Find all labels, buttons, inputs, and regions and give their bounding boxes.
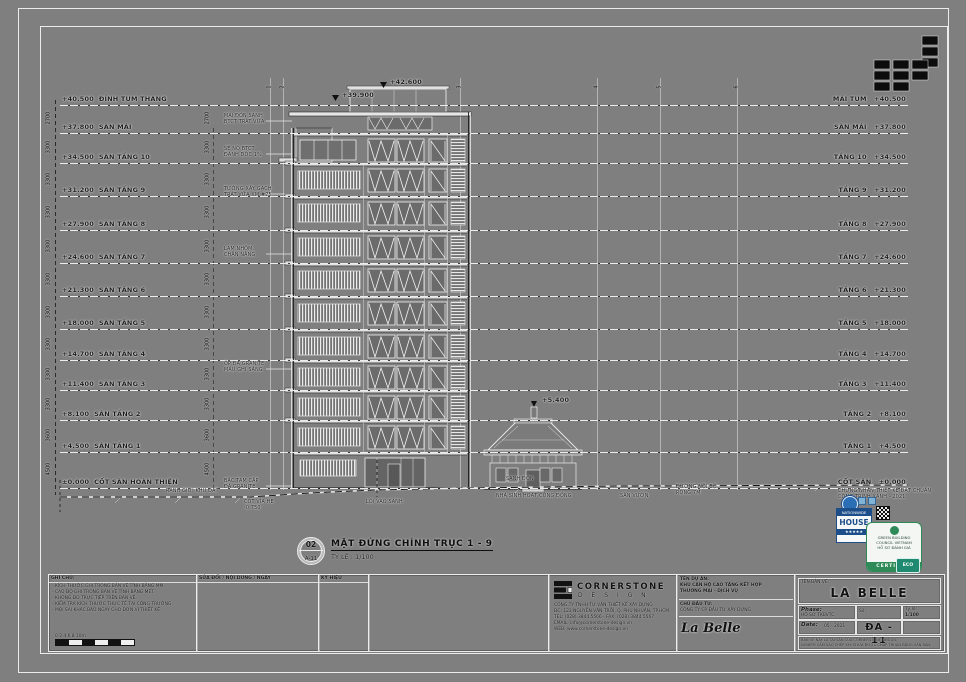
- level-dimension-inner: 3600: [204, 429, 210, 442]
- house-stamp-header: NATIONWIDE: [837, 509, 871, 516]
- legend-box: KÝ HIỆU: [318, 574, 370, 652]
- level-label-right: TẦNG 4 +14.700: [838, 351, 906, 358]
- project-divider: [679, 599, 793, 600]
- firm-address: CÔNG TY TNHH TƯ VẤN THIẾT KẾ XÂY DỰNG ĐC…: [554, 603, 669, 633]
- level-line: [60, 196, 908, 197]
- level-label-right: TẦNG 10 +34.500: [834, 154, 906, 161]
- bubble-number: 02: [298, 540, 324, 549]
- level-dimension: 3300: [45, 206, 51, 219]
- grid-axis-label: 4: [594, 85, 600, 88]
- level-label-right: TẦNG 3 +11.400: [838, 381, 906, 388]
- level-label-right: TẦNG 5 +18.000: [838, 320, 906, 327]
- level-line: [60, 360, 908, 361]
- date-label: Date:: [801, 622, 818, 629]
- grid-axis-label: 1: [267, 85, 273, 88]
- level-label-right: TẦNG 8 +27.900: [838, 221, 906, 228]
- level-line: [60, 105, 908, 106]
- ground-label: ĐƯỜNG NỘI BỘ RỘNG 7M: [676, 485, 717, 496]
- ground-label: CỐT VỈA HÈ -0.750: [244, 500, 274, 511]
- scale-value: 1/100: [905, 613, 919, 619]
- firm-name: CORNERSTONE: [577, 582, 665, 592]
- date-value: 05 - 2021: [824, 624, 845, 630]
- notes-box: GHI CHÚ: - KÍCH THƯỚC GHI TRONG BẢN VẼ T…: [48, 574, 198, 652]
- fine-print-cell: BẢN VẼ NÀY LÀ TÀI SẢN CỦA CORNERSTONE DE…: [798, 636, 941, 650]
- phase-value: HỒ SƠ TKBVTC: [801, 613, 834, 619]
- firm-box: CORNERSTONE D E S I G N CÔNG TY TNHH TƯ …: [548, 574, 678, 652]
- ground-label: RANH GIỚI KHU ĐẤT: [166, 489, 219, 495]
- number-label: Số:: [859, 609, 866, 615]
- level-dimension-inner: 3300: [204, 368, 210, 381]
- pavilion-label: NHÀ SINH HOẠT CỘNG ĐỒNG: [496, 494, 572, 500]
- format-cell: [902, 620, 941, 635]
- firm-subtitle: D E S I G N: [578, 592, 649, 599]
- level-dimension-inner: 2700: [204, 112, 210, 125]
- grid-axis-label: 2: [280, 85, 286, 88]
- grid-axis-label: 3: [457, 85, 463, 88]
- leader-annotation: LAM NHÔM CHẮN NẮNG: [224, 247, 270, 258]
- level-dimension-inner: 3300: [204, 239, 210, 252]
- level-label-right: TẦNG 9 +31.200: [838, 187, 906, 194]
- level-label-right: TẦNG 6 +21.300: [838, 287, 906, 294]
- drawing-title: MẶT ĐỨNG CHÍNH TRỤC 1 - 9: [331, 539, 493, 551]
- bubble-divider: [299, 550, 323, 551]
- level-dimension-inner: 3300: [204, 398, 210, 411]
- level-dimension-inner: 3300: [204, 272, 210, 285]
- scale-label-cell: Tỷ lệ: 1/100: [902, 605, 941, 620]
- project-box: TÊN DỰ ÁN: KHU CĂN HỘ CAO TẦNG KẾT HỢP T…: [676, 574, 796, 652]
- level-dimension: 3300: [45, 368, 51, 381]
- eco-badge-stamp: ECO: [896, 558, 920, 573]
- level-label-right: TẦNG 7 +24.600: [838, 254, 906, 261]
- leader-annotation: MÁI ĐÓN SẢNH BTCT TRÁT VỮA: [224, 114, 270, 125]
- level-label-left: +40.500 ĐỈNH TUM THANG: [62, 96, 167, 103]
- ground-label: SẢNH ĐÓN: [506, 477, 534, 483]
- level-dimension: 3300: [45, 239, 51, 252]
- level-dimension: 3300: [45, 172, 51, 185]
- level-flag-label: +5.400: [542, 397, 569, 404]
- level-label-right: TẦNG 2 +8.100: [843, 411, 906, 418]
- grid-axis-label: 5: [657, 85, 663, 88]
- sheet-number-cell: ĐA - 11: [856, 620, 902, 635]
- sheet-big-title: LA BELLE: [799, 586, 940, 600]
- level-label-right: SÀN MÁI +37.800: [834, 124, 906, 131]
- level-dimension: 2700: [45, 112, 51, 125]
- graphic-scale-bar: [55, 639, 135, 646]
- notes-lines: - KÍCH THƯỚC GHI TRONG BẢN VẼ TÍNH BẰNG …: [49, 583, 197, 615]
- revisions-header: SỬA ĐỔI / NỘI DUNG / NGÀY: [197, 575, 319, 583]
- level-line: [60, 230, 908, 231]
- level-line: [60, 263, 908, 264]
- revisions-box: SỬA ĐỔI / NỘI DUNG / NGÀY: [196, 574, 320, 652]
- phase-cell: Phase: HỒ SƠ TKBVTC: [798, 605, 856, 620]
- level-label-right: MÁI TUM +40.500: [833, 96, 906, 103]
- number-label-cell: Số:: [856, 605, 902, 620]
- project-brand: La Belle: [681, 621, 741, 636]
- level-dimension-inner: 4500: [204, 463, 210, 476]
- level-label-left: +27.900 SÀN TẦNG 8: [62, 221, 145, 228]
- blank-box: [368, 574, 550, 652]
- level-line: [60, 296, 908, 297]
- level-dimension: 4500: [45, 463, 51, 476]
- level-label-left: +8.100 SÀN TẦNG 2: [62, 411, 141, 418]
- level-label-left: ±0.000 CỐT SÂN HOÀN THIỆN: [62, 479, 178, 486]
- level-dimension: 3300: [45, 398, 51, 411]
- level-dimension: 3300: [45, 305, 51, 318]
- green-stamp-text: GREEN BUILDING COUNCIL VIETNAM HỒ SƠ ĐÁN…: [867, 536, 921, 551]
- level-label-left: +11.400 SÀN TẦNG 3: [62, 381, 145, 388]
- level-dimension: 3300: [45, 141, 51, 154]
- level-dimension-inner: 3300: [204, 305, 210, 318]
- fine-print: BẢN VẼ NÀY LÀ TÀI SẢN CỦA CORNERSTONE DE…: [799, 637, 940, 649]
- leader-annotation: SÊ NÔ BTCT ĐÁNH DỐC 1%: [224, 147, 270, 158]
- level-label-left: +24.600 SÀN TẦNG 7: [62, 254, 145, 261]
- bubble-sheet-ref: A-11: [298, 556, 324, 562]
- level-dimension-inner: 3300: [204, 337, 210, 350]
- level-flag-label: +39.900: [342, 92, 374, 99]
- drawing-sheet-page: { "levels": [ {"left": "+40.500 ĐỈNH TUM…: [0, 0, 966, 682]
- level-dimension: 3300: [45, 272, 51, 285]
- date-cell: Date: 05 - 2021: [798, 620, 856, 635]
- level-label-left: +21.300 SÀN TẦNG 6: [62, 287, 145, 294]
- detail-bubble: 02 A-11: [297, 537, 325, 565]
- level-label-left: +37.800 SÀN MÁI: [62, 124, 132, 131]
- level-line: [60, 163, 908, 164]
- level-dimension-inner: 3300: [204, 141, 210, 154]
- level-line: [60, 390, 908, 391]
- ground-label: LỐI VÀO SẢNH: [366, 500, 403, 506]
- qr-code-stamp: [876, 506, 890, 520]
- legend-header: KÝ HIỆU: [319, 575, 369, 583]
- grid-axis-label: 6: [734, 85, 740, 88]
- level-line: [60, 452, 908, 453]
- level-label-right: CỐT SÂN ±0.000: [838, 479, 906, 486]
- leader-annotation: ỐP ĐÁ GRANITE MÀU GHI SÁNG: [224, 362, 270, 373]
- level-label-left: +4.500 SÀN TẦNG 1: [62, 443, 141, 450]
- level-flag-label: +42.600: [390, 79, 422, 86]
- level-dimension-inner: 3300: [204, 172, 210, 185]
- leader-annotation: TƯỜNG XÂY GẠCH TRÁT VỮA XM #75: [224, 187, 270, 198]
- firm-logo-icon: [554, 581, 572, 599]
- leader-annotation: BẬC TAM CẤP ĐÁ GRANITE: [224, 479, 270, 490]
- level-label-left: +31.200 SÀN TẦNG 9: [62, 187, 145, 194]
- owner-name: CÔNG TY CP ĐẦU TƯ XÂY DỰNG: [680, 608, 751, 614]
- level-label-left: +34.500 SÀN TẦNG 10: [62, 154, 150, 161]
- level-dimension: 3600: [45, 429, 51, 442]
- level-label-right: TẦNG 1 +4.500: [843, 443, 906, 450]
- level-dimension: 3300: [45, 337, 51, 350]
- level-label-left: +18.000 SÀN TẦNG 5: [62, 320, 145, 327]
- level-line: [60, 329, 908, 330]
- sheet-name-cell: TÊN BẢN VẼ: LA BELLE: [798, 578, 941, 604]
- certification-icons: [858, 497, 876, 505]
- level-line: [60, 133, 908, 134]
- project-name: KHU CĂN HỘ CAO TẦNG KẾT HỢP THƯƠNG MẠI -…: [680, 583, 762, 595]
- project-divider-2: [679, 616, 793, 617]
- green-stamp-logo: [890, 526, 899, 535]
- level-label-left: +14.700 SÀN TẦNG 4: [62, 351, 145, 358]
- level-line: [60, 420, 908, 421]
- sheet-info-box: TÊN BẢN VẼ: LA BELLE Phase: HỒ SƠ TKBVTC…: [794, 574, 945, 652]
- level-dimension-inner: 3300: [204, 206, 210, 219]
- notes-header: GHI CHÚ:: [49, 575, 197, 583]
- ground-label: SÂN VƯỜN: [620, 494, 649, 500]
- drawing-scale: TỶ LỆ : 1/100: [331, 553, 374, 561]
